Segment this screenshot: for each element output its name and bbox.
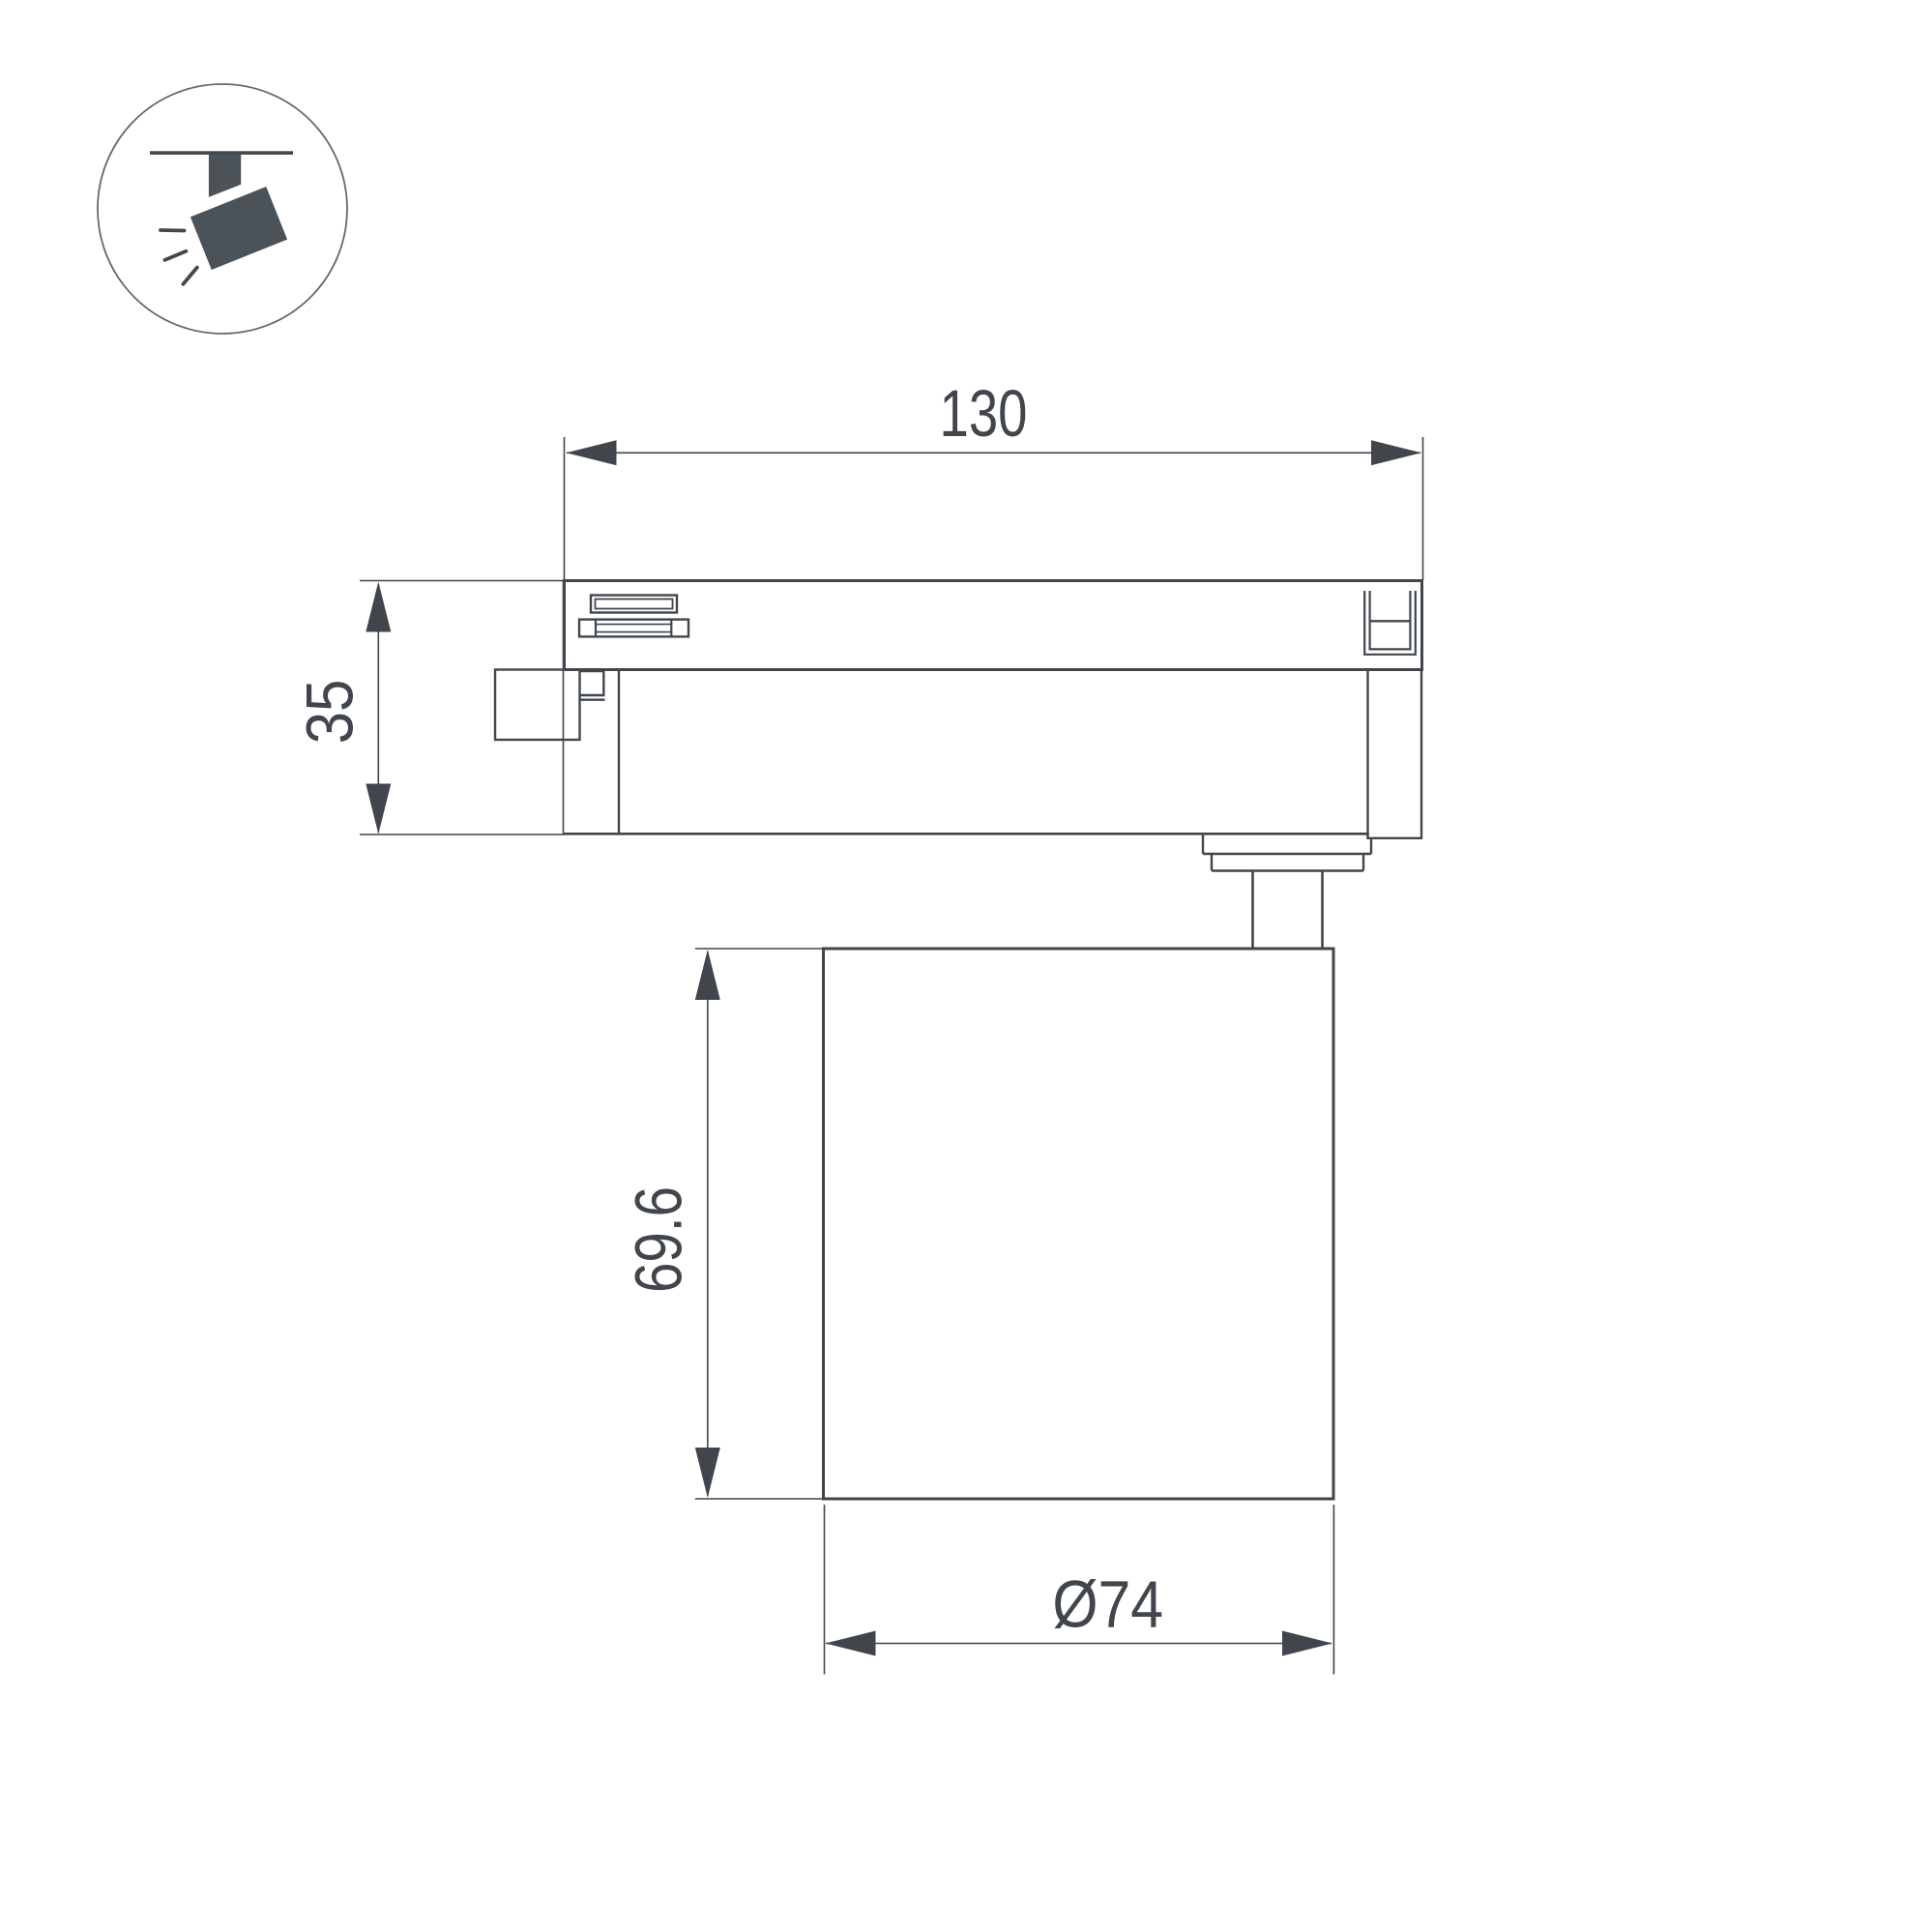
svg-text:130: 130 xyxy=(940,377,1028,452)
svg-text:35: 35 xyxy=(291,680,366,745)
svg-text:Ø74: Ø74 xyxy=(1052,1566,1163,1642)
svg-text:69.6: 69.6 xyxy=(622,1186,696,1293)
